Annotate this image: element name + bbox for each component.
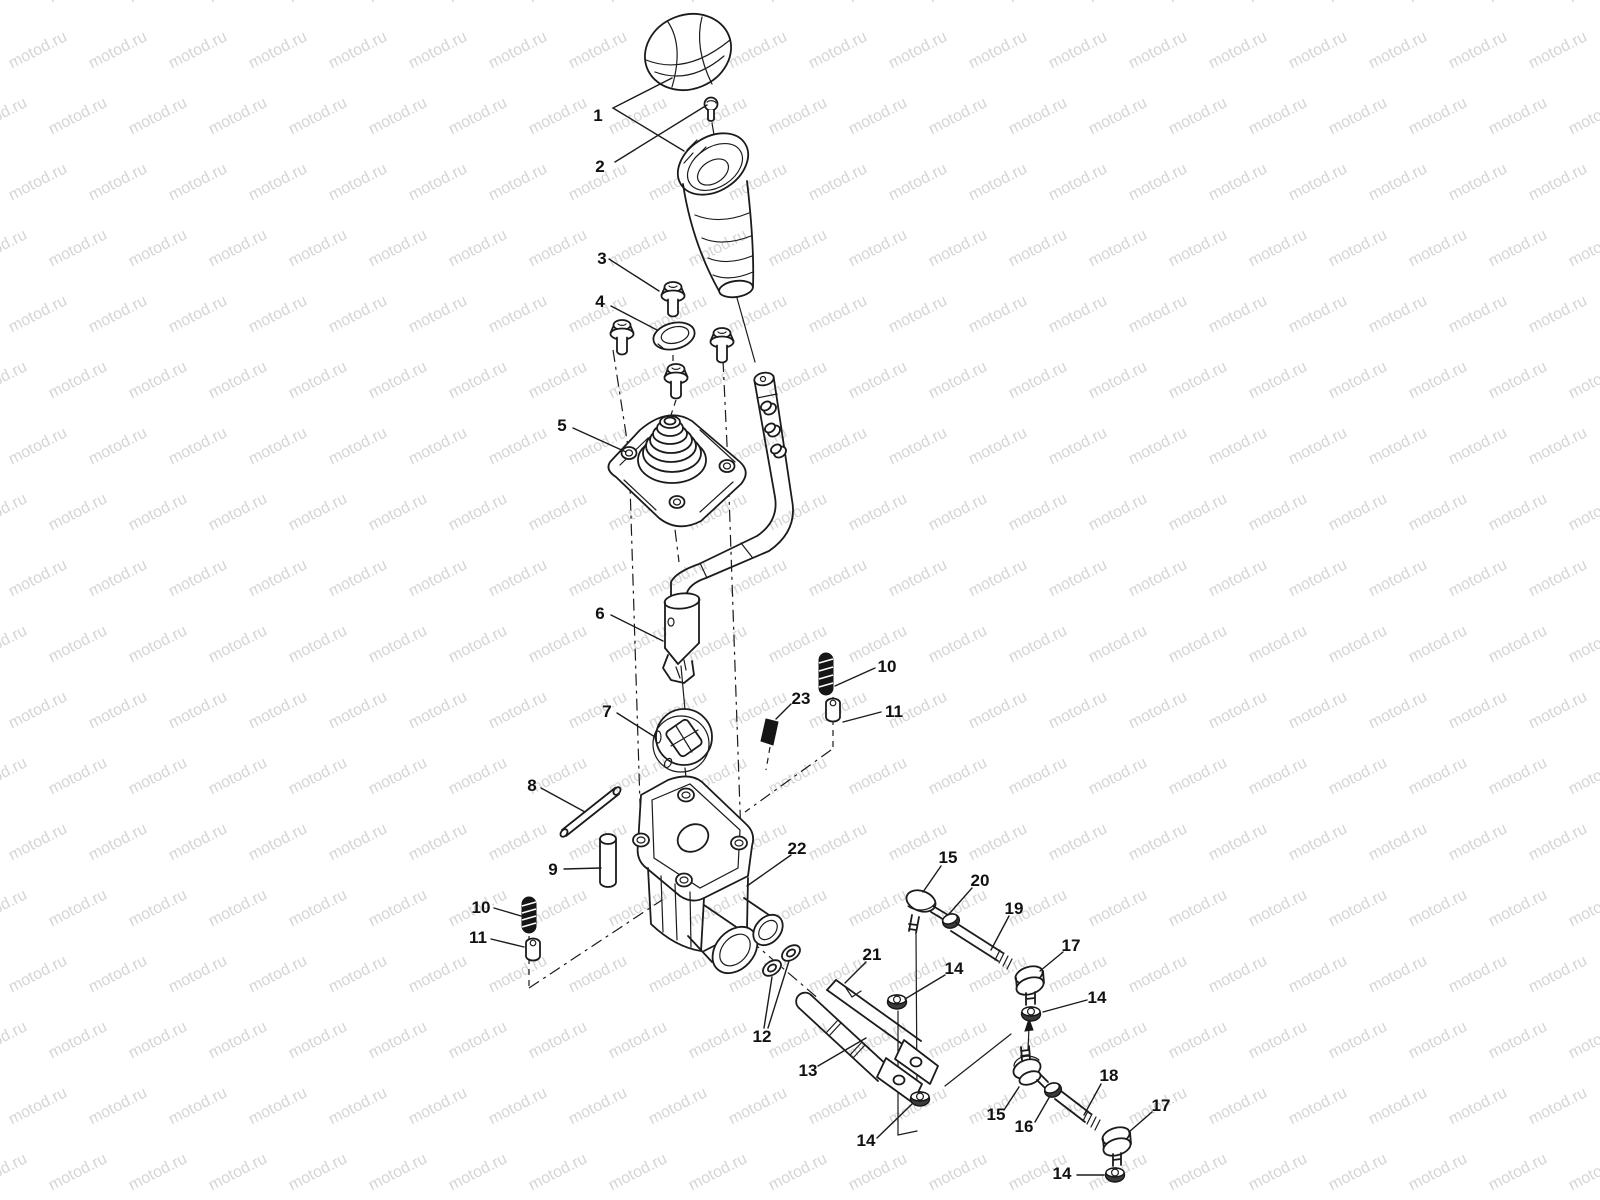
split-ring-4 (650, 318, 697, 353)
nut-14-a (888, 995, 907, 1009)
part-label-14-d: 14 (1053, 1164, 1072, 1183)
jam-nut-16 (1043, 1081, 1064, 1100)
nut-14-d (1106, 1168, 1125, 1182)
bolt-3 (662, 282, 685, 317)
part-label-10-left: 10 (472, 898, 491, 917)
ball-joint-15-bottom (1011, 1046, 1048, 1088)
washer-12-a (760, 957, 784, 979)
detent-cam-7 (653, 709, 712, 772)
part-label-15-top: 15 (939, 848, 958, 867)
spring-10-left (522, 897, 536, 933)
spring-10-right (819, 653, 833, 695)
part-label-12: 12 (753, 1027, 772, 1046)
leader-lines (491, 78, 1152, 1175)
part-label-23: 23 (792, 689, 811, 708)
part-label-9: 9 (548, 860, 557, 879)
part-label-4: 4 (595, 292, 605, 311)
nut-14-b (1022, 1007, 1041, 1021)
tie-rod-end-17-bottom (1100, 1124, 1133, 1166)
nut-14-c (911, 1092, 930, 1106)
part-label-19: 19 (1005, 899, 1024, 918)
part-label-18: 18 (1100, 1066, 1119, 1085)
ball-joint-15-top (903, 886, 948, 933)
exploded-diagram: 1 2 3 4 5 6 7 8 9 10 11 10 11 23 22 12 2… (0, 0, 1600, 1200)
part-label-11-left: 11 (469, 928, 487, 947)
part-label-17-bottom: 17 (1152, 1096, 1171, 1115)
part-label-11-right: 11 (885, 702, 903, 721)
part-label-10-right: 10 (878, 657, 897, 676)
part-label-21: 21 (863, 945, 882, 964)
part-label-17-top: 17 (1062, 936, 1081, 955)
part-label-22: 22 (788, 839, 807, 858)
part-label-1: 1 (593, 106, 602, 125)
part-label-7: 7 (602, 702, 611, 721)
part-label-14-b: 14 (1088, 988, 1107, 1007)
part-label-3: 3 (597, 249, 606, 268)
construction-lines (529, 123, 1033, 1135)
washer-12-b (779, 942, 803, 964)
pivot-pin-9 (600, 834, 616, 887)
plunger-11-left (526, 939, 540, 961)
bolt-left (611, 320, 634, 355)
handle-cone (666, 121, 759, 300)
housing-22 (633, 776, 789, 982)
plunger-11-right (826, 699, 840, 722)
roll-pin-8 (559, 786, 622, 838)
part-label-14-a: 14 (945, 959, 964, 978)
knob-screw (705, 98, 718, 122)
part-label-13: 13 (799, 1061, 818, 1080)
shift-knob (633, 1, 742, 103)
pin-23 (761, 719, 778, 745)
part-label-2: 2 (595, 157, 604, 176)
parts-diagram-page: motod.rumotod.rumotod.rumotod.rumotod.ru… (0, 0, 1600, 1200)
bolt-center (665, 364, 688, 399)
part-label-6: 6 (595, 604, 604, 623)
part-label-8: 8 (527, 776, 536, 795)
jam-nut-20 (941, 912, 962, 931)
part-label-16: 16 (1015, 1117, 1034, 1136)
part-label-20: 20 (971, 871, 990, 890)
part-label-5: 5 (557, 416, 566, 435)
bolt-right (711, 328, 734, 363)
part-label-15-bottom: 15 (987, 1105, 1006, 1124)
shift-rod-21 (827, 980, 921, 1051)
part-label-14-c: 14 (857, 1131, 876, 1150)
part-labels: 1 2 3 4 5 6 7 8 9 10 11 10 11 23 22 12 2… (469, 106, 1170, 1183)
